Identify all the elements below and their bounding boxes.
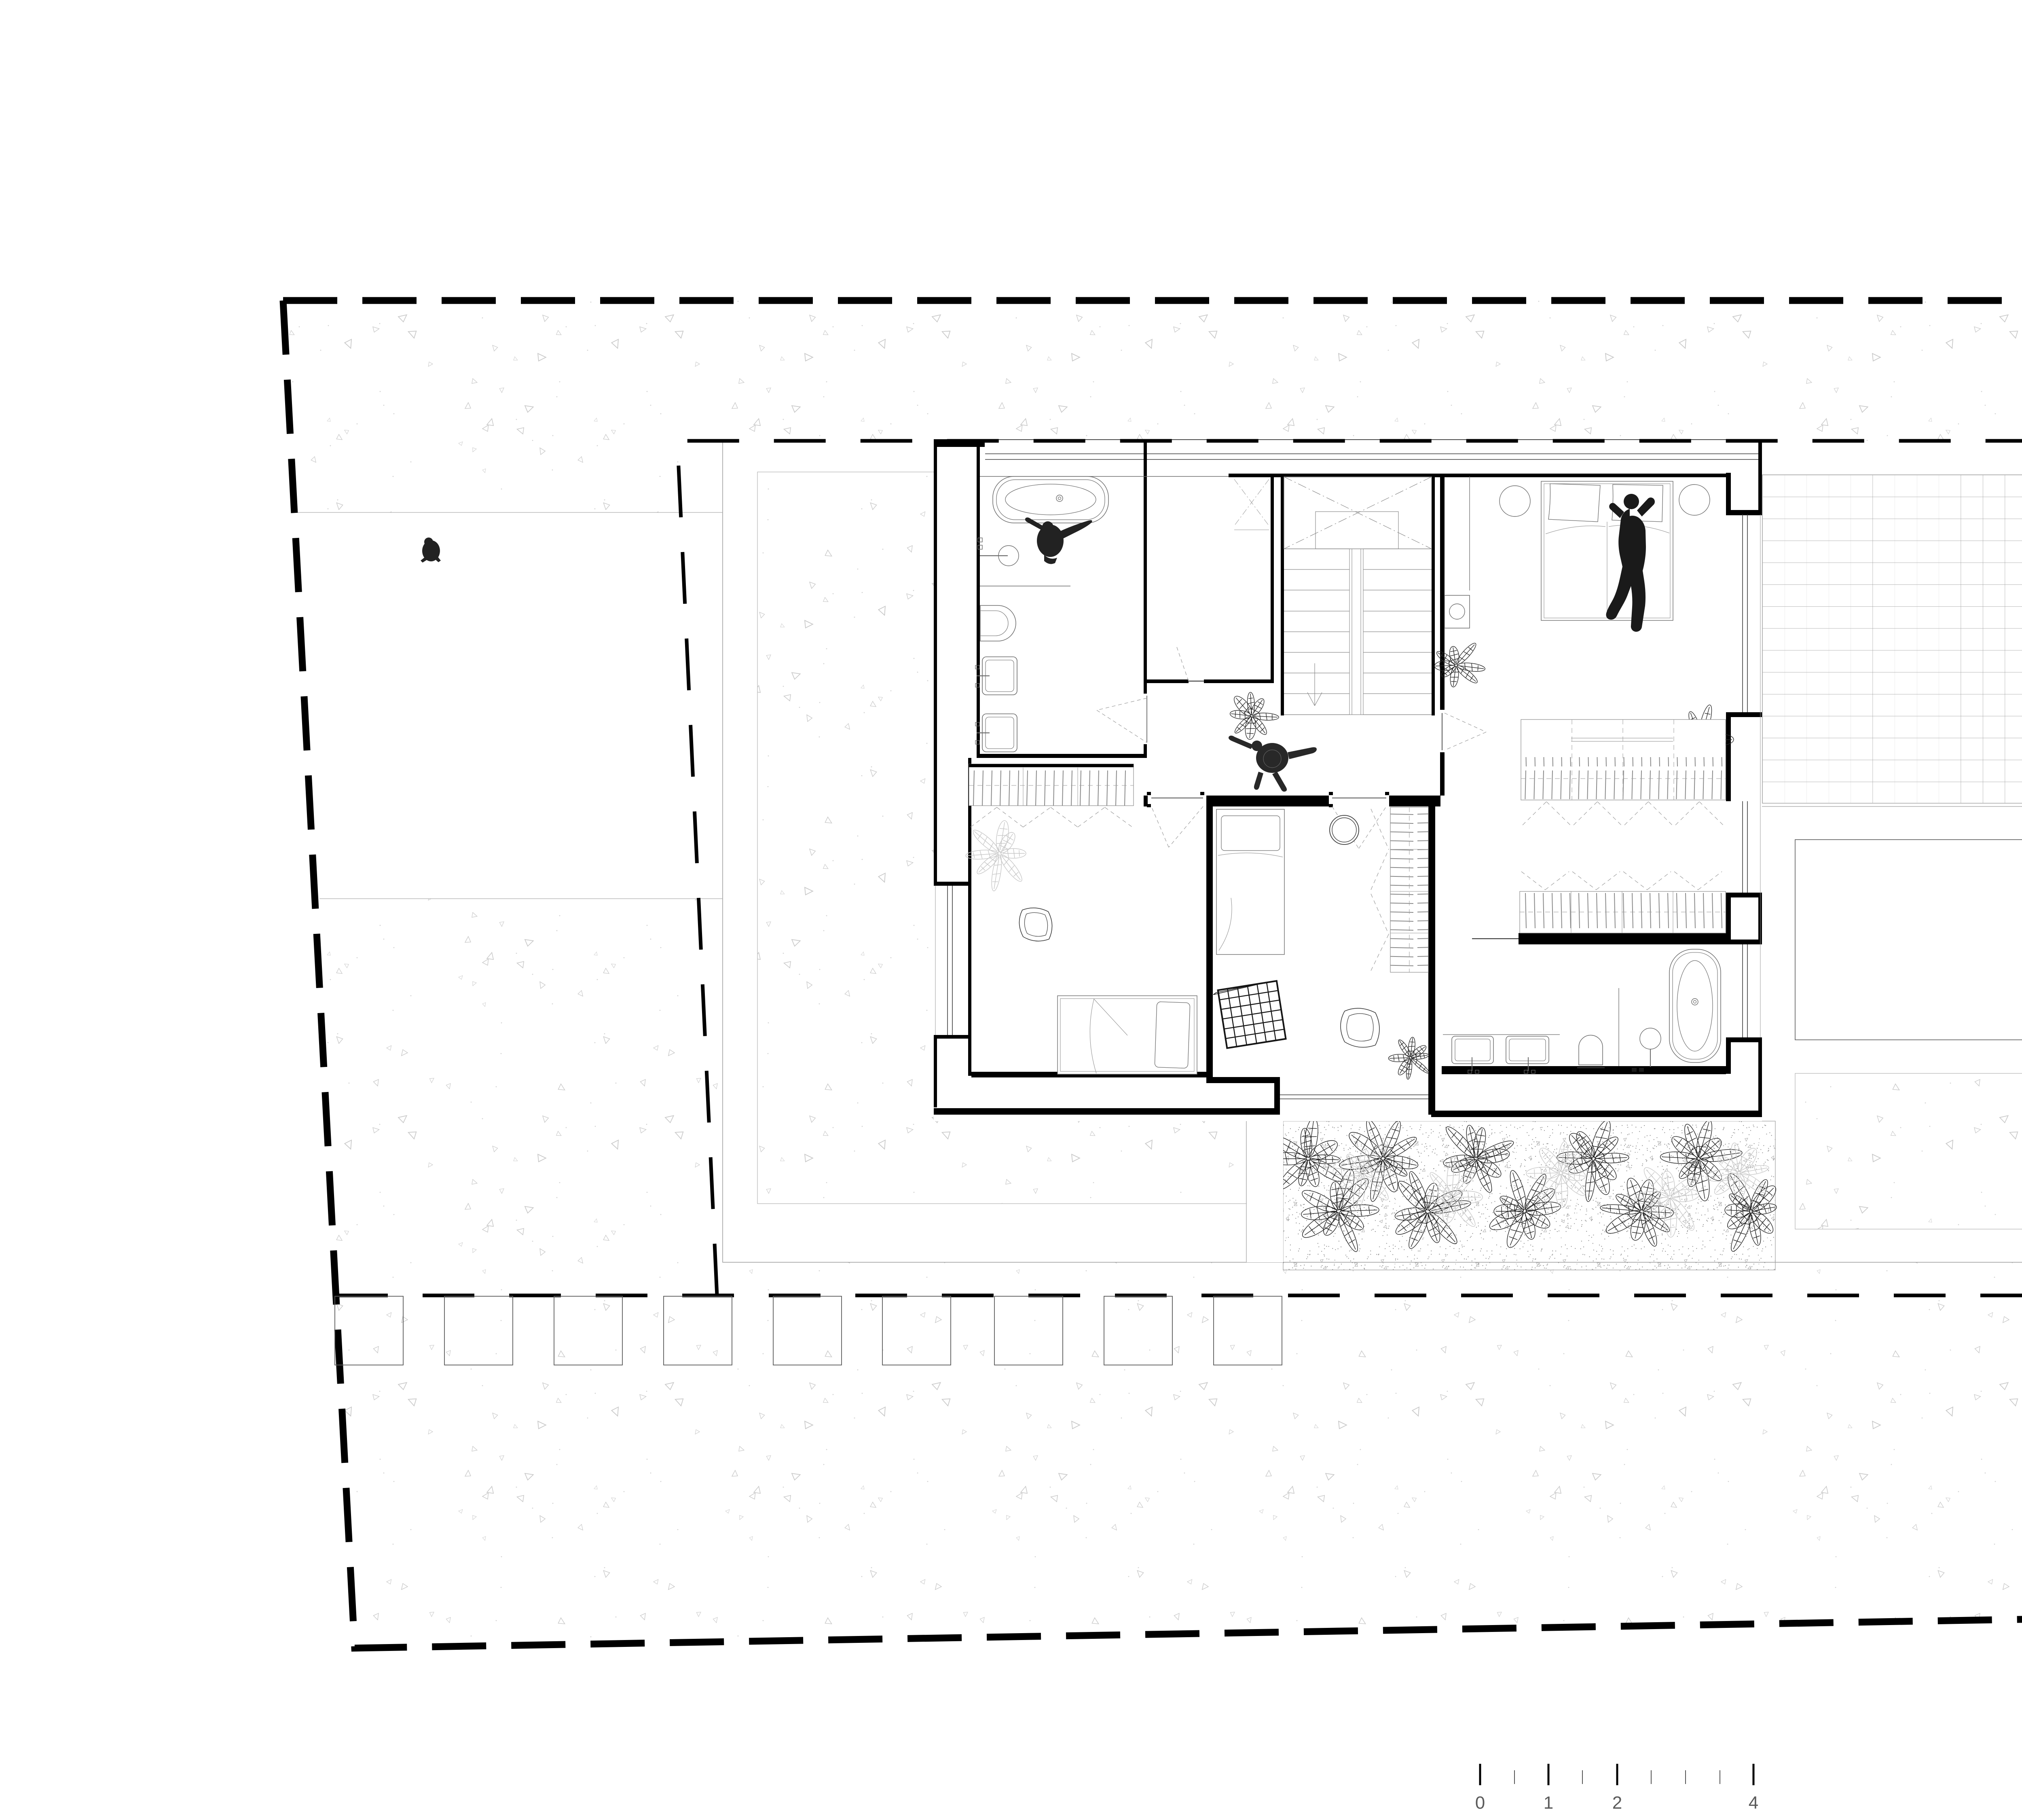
svg-text:0: 0 — [1475, 1793, 1485, 1813]
svg-text:2: 2 — [1612, 1793, 1622, 1813]
svg-text:1: 1 — [1544, 1793, 1553, 1813]
svg-text:4: 4 — [1749, 1793, 1758, 1813]
